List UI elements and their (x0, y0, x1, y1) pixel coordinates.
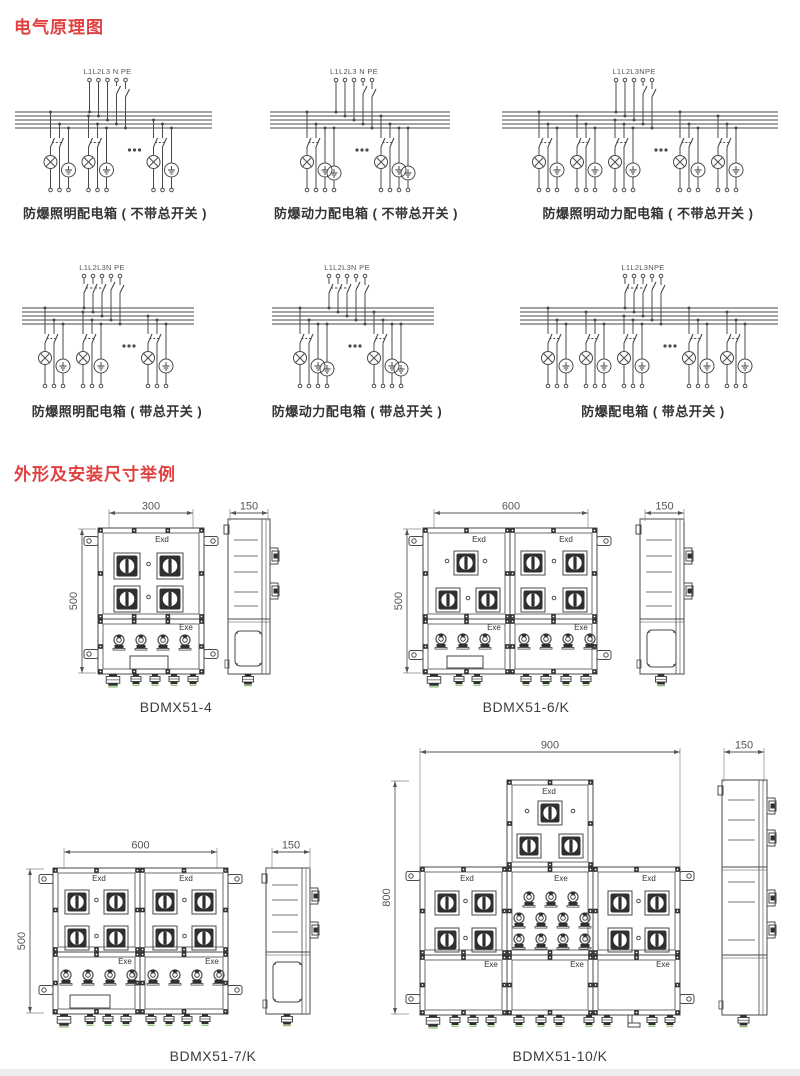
lighting-branch (39, 307, 71, 388)
socket-ground-icon (62, 127, 76, 192)
bottom-cable-gland-icon (188, 674, 198, 685)
lighting-branch (712, 115, 744, 192)
bottom-cable-gland-icon (146, 1014, 156, 1025)
socket-ground-icon (635, 323, 649, 388)
bottom-cable-gland-icon (243, 674, 254, 686)
socket-ground-icon (729, 127, 743, 192)
circuit-caption-power-no-main: 防爆动力配电箱 ( 不带总开关 ) (256, 203, 476, 222)
bottom-cable-gland-icon (150, 674, 160, 685)
cable-gland-icon (518, 634, 530, 649)
bottom-cable-gland-icon (164, 1014, 174, 1025)
lamp-icon (609, 156, 622, 169)
lamp-icon (571, 156, 584, 169)
lamp-icon (618, 352, 631, 365)
circuit-diagram-2: L1L2L3 N PE (270, 67, 450, 192)
lamp-icon (674, 156, 687, 169)
mounting-ear-icon (84, 650, 98, 659)
socket-ground-icon (320, 323, 334, 388)
dimension-height: 800 (381, 781, 409, 1014)
mounting-ear-icon (228, 875, 242, 884)
bottom-cable-gland-icon (521, 674, 531, 685)
bottom-cable-gland-icon (200, 1014, 210, 1025)
dimension-value: 500 (16, 932, 28, 950)
dimension-value: 150 (735, 740, 753, 752)
cable-gland-icon (579, 934, 591, 949)
cabinet-side-view (718, 780, 776, 1027)
cable-gland-icon (213, 970, 225, 985)
cabinet-front-view: ExdExe (84, 528, 218, 687)
exd-label: Exd (542, 787, 556, 796)
exd-label: Exd (642, 874, 656, 883)
lamp-icon (542, 352, 555, 365)
mounting-ear-icon (39, 986, 53, 995)
product-spec-page: L1L2L3 N PEL1L2L3 N PEL1L2L3NPEL1L2L3N P… (0, 0, 800, 1076)
rotary-switch-icon (104, 926, 128, 950)
lighting-branch (142, 315, 174, 388)
lamp-icon (580, 352, 593, 365)
socket-ground-icon (56, 323, 70, 388)
exd-label: Exd (155, 535, 169, 544)
side-connector-icon (310, 922, 319, 938)
dimension-width: 150 (272, 840, 310, 870)
cable-gland-icon (562, 634, 574, 649)
mounting-ear-icon (680, 872, 694, 881)
exe-label: Exe (118, 957, 132, 966)
lighting-branch (609, 119, 641, 192)
dimension-value: 150 (282, 840, 300, 852)
circuit-diagram-1: L1L2L3 N PE (15, 67, 212, 192)
cable-gland-icon (104, 970, 116, 985)
rotary-switch-icon (608, 928, 632, 952)
side-connector-icon (270, 583, 279, 599)
cable-gland-icon (479, 634, 491, 649)
cable-gland-icon (135, 635, 147, 650)
exe-label: Exe (205, 957, 219, 966)
terminal-labels: L1L2L3N PE (79, 263, 125, 272)
dimension-value: 800 (381, 888, 393, 906)
lighting-branch (571, 115, 603, 192)
dimension-value: 600 (502, 501, 520, 513)
rotary-switch-icon (153, 926, 177, 950)
rotary-switch-icon (563, 588, 587, 612)
terminal-labels: L1L2L3 N PE (84, 67, 132, 76)
socket-ground-icon (392, 127, 406, 192)
socket-ground-icon (559, 323, 573, 388)
bottom-cable-gland-icon (282, 1014, 293, 1026)
exd-label: Exd (179, 874, 193, 883)
cable-gland-icon (579, 913, 591, 928)
bus-lines (520, 308, 778, 324)
cabinet-model-bdmx51-6k: BDMX51-6/K (436, 699, 616, 715)
cable-gland-icon (584, 634, 596, 649)
exe-label: Exe (487, 623, 501, 632)
bottom-cable-gland-icon (182, 1014, 192, 1025)
mounting-ear-icon (409, 651, 423, 660)
cable-gland-icon (113, 635, 125, 650)
side-panel (235, 631, 262, 666)
cabinet-front-view: ExdExdExeExe (409, 528, 611, 687)
ellipsis-dots (122, 344, 135, 347)
dimension-width: 150 (645, 501, 684, 522)
power-branch (375, 115, 416, 192)
bottom-cable-gland-icon (514, 1015, 524, 1026)
dimension-width: 150 (724, 740, 764, 783)
exe-label: Exe (656, 960, 670, 969)
cable-gland-icon (513, 913, 525, 928)
bottom-cable-gland-icon (656, 674, 667, 686)
mounting-ear-icon (228, 986, 242, 995)
bottom-cable-gland-icon (85, 1014, 95, 1025)
side-connector-icon (767, 830, 776, 846)
rotary-switch-icon (65, 926, 89, 950)
rotary-switch-icon (608, 891, 632, 915)
bus-lines (272, 308, 434, 324)
ellipsis-dots (355, 148, 368, 151)
side-connector-icon (767, 798, 776, 814)
dimension-width: 150 (230, 501, 268, 522)
cable-gland-icon (457, 634, 469, 649)
cabinet-side-view (224, 519, 279, 686)
lamp-icon (368, 352, 381, 365)
mounting-ear-icon (597, 537, 611, 546)
rotary-switch-icon (472, 891, 496, 915)
bottom-cable-gland-icon (647, 1015, 657, 1026)
rotary-switch-icon (454, 551, 478, 575)
mounting-ear-icon (597, 651, 611, 660)
mounting-ear-icon (204, 650, 218, 659)
mounting-ear-icon (204, 537, 218, 546)
dimension-value: 500 (393, 592, 405, 610)
cabinet-front-view: ExdExdExeExe (39, 868, 242, 1027)
mounting-ear-icon (406, 995, 420, 1004)
side-connector-icon (684, 583, 693, 599)
dimension-value: 900 (541, 740, 559, 752)
bottom-cable-gland-icon (584, 1015, 594, 1026)
dimension-height: 500 (68, 529, 96, 673)
cable-gland-icon (82, 970, 94, 985)
lamp-icon (77, 352, 90, 365)
exe-label: Exe (574, 623, 588, 632)
socket-ground-icon (159, 323, 173, 388)
cable-gland-icon (179, 635, 191, 650)
cable-gland-icon (147, 970, 159, 985)
cable-gland-icon (567, 892, 579, 907)
dimension-value: 600 (131, 840, 149, 852)
cable-gland-icon (191, 970, 203, 985)
lighting-branch (683, 307, 715, 388)
ellipsis-dots (348, 344, 361, 347)
socket-ground-icon (327, 127, 341, 192)
socket-ground-icon (691, 127, 705, 192)
section-title-dimensions: 外形及安装尺寸举例 (14, 460, 176, 485)
rotary-switch-icon (192, 890, 216, 914)
cabinet-model-bdmx51-4: BDMX51-4 (86, 699, 266, 715)
rotary-switch-icon (192, 926, 216, 950)
lighting-branch (77, 311, 109, 388)
side-panel (647, 630, 676, 667)
cable-gland-icon (513, 934, 525, 949)
cable-gland-icon (545, 892, 557, 907)
power-branch (368, 311, 409, 388)
exd-label: Exd (559, 535, 573, 544)
conduit-elbow-icon (628, 1015, 640, 1027)
lighting-branch (533, 111, 565, 192)
cabinet-front-view: ExdExdExdExeExeExeExe (406, 780, 694, 1028)
dimension-value: 150 (240, 501, 258, 513)
lamp-icon (39, 352, 52, 365)
lighting-branch (82, 115, 114, 192)
lamp-icon (147, 156, 160, 169)
compartment-frame (507, 867, 593, 955)
socket-ground-icon (394, 323, 408, 388)
cable-gland-icon (60, 970, 72, 985)
rotary-switch-icon (157, 553, 183, 579)
lighting-branch (542, 307, 574, 388)
circuit-caption-lighting-no-main: 防爆照明配电箱 ( 不带总开关 ) (5, 203, 225, 222)
lighting-branch (721, 311, 753, 388)
dimension-width: 600 (434, 501, 588, 530)
lamp-icon (82, 156, 95, 169)
cable-gland-icon (540, 634, 552, 649)
cable-gland-icon (557, 934, 569, 949)
cable-gland-icon (523, 892, 535, 907)
cabinet-model-bdmx51-7k: BDMX51-7/K (123, 1048, 303, 1064)
rotary-switch-icon (114, 553, 140, 579)
section-title-schematics: 电气原理图 (14, 13, 104, 38)
footer-strip (0, 1069, 800, 1076)
lighting-branch (580, 311, 612, 388)
lamp-icon (142, 352, 155, 365)
circuit-diagram-4: L1L2L3N PE (22, 263, 194, 388)
cable-gland-icon (535, 934, 547, 949)
bottom-cable-gland-icon (131, 674, 141, 685)
circuit-caption-power-with-main: 防爆动力配电箱 ( 带总开关 ) (247, 401, 467, 420)
lamp-icon (301, 156, 314, 169)
power-branch (294, 307, 335, 388)
bottom-cable-gland-icon (554, 1015, 564, 1026)
lighting-branch (147, 119, 179, 192)
lighting-branch (44, 111, 76, 192)
lamp-icon (375, 156, 388, 169)
bottom-cable-gland-icon (486, 1015, 496, 1026)
lamp-icon (533, 156, 546, 169)
cabinet-model-bdmx51-10k: BDMX51-10/K (470, 1048, 650, 1064)
rotary-switch-icon (104, 890, 128, 914)
dimension-height: 500 (16, 869, 44, 1013)
bottom-cable-gland-icon (450, 1015, 460, 1026)
circuit-diagram-6: L1L2L3NPE (520, 263, 778, 388)
dimension-value: 300 (142, 501, 160, 513)
exe-label: Exe (484, 960, 498, 969)
exd-label: Exd (92, 874, 106, 883)
dimension-height: 500 (393, 529, 421, 673)
rotary-switch-icon (521, 588, 545, 612)
rotary-switch-icon (538, 801, 562, 825)
dimension-width: 300 (109, 501, 193, 530)
socket-ground-icon (165, 127, 179, 192)
circuit-diagram-5: L1L2L3N PE (272, 263, 434, 388)
rotary-switch-icon (559, 834, 583, 858)
rotary-switch-icon (435, 891, 459, 915)
terminal-labels: L1L2L3N PE (324, 263, 370, 272)
bottom-cable-gland-icon (541, 674, 551, 685)
socket-ground-icon (626, 127, 640, 192)
cable-gland-icon (435, 634, 447, 649)
lamp-icon (294, 352, 307, 365)
rotary-switch-icon (563, 551, 587, 575)
rotary-switch-icon (436, 588, 460, 612)
rotary-switch-icon (114, 586, 140, 612)
bottom-cable-gland-icon (454, 674, 464, 685)
lamp-icon (721, 352, 734, 365)
power-branch (301, 111, 342, 192)
socket-ground-icon (550, 127, 564, 192)
exe-label: Exe (570, 960, 584, 969)
rotary-switch-icon (645, 928, 669, 952)
rotary-switch-icon (157, 586, 183, 612)
side-connector-icon (310, 888, 319, 904)
bottom-cable-gland-icon (536, 1015, 546, 1026)
socket-ground-icon (318, 127, 332, 192)
side-panel (273, 962, 302, 1002)
bottom-cable-gland-icon (427, 674, 441, 687)
bus-lines (22, 308, 194, 324)
mounting-ear-icon (409, 537, 423, 546)
socket-ground-icon (700, 323, 714, 388)
rotary-switch-icon (517, 834, 541, 858)
technical-drawings: L1L2L3 N PEL1L2L3 N PEL1L2L3NPEL1L2L3N P… (0, 0, 800, 1076)
bottom-cable-gland-icon (581, 674, 591, 685)
side-connector-icon (684, 548, 693, 564)
bottom-cable-gland-icon (426, 1015, 440, 1028)
lighting-branch (618, 315, 650, 388)
exd-label: Exd (472, 535, 486, 544)
bottom-cable-gland-icon (103, 1014, 113, 1025)
side-connector-icon (767, 890, 776, 906)
socket-ground-icon (597, 323, 611, 388)
terminal-labels: L1L2L3NPE (621, 263, 664, 272)
cabinet-side-view (262, 868, 319, 1026)
mounting-ear-icon (39, 875, 53, 884)
rotary-switch-icon (435, 928, 459, 952)
bottom-cable-gland-icon (738, 1015, 749, 1027)
rotary-switch-icon (521, 551, 545, 575)
cable-gland-icon (557, 913, 569, 928)
lamp-icon (44, 156, 57, 169)
cable-gland-icon (157, 635, 169, 650)
bus-lines (502, 112, 778, 128)
bottom-cable-gland-icon (468, 1015, 478, 1026)
circuit-caption-lighting-with-main: 防爆照明配电箱 ( 带总开关 ) (7, 401, 227, 420)
side-connector-icon (270, 548, 279, 564)
dimension-value: 500 (68, 592, 80, 610)
exe-label: Exe (179, 623, 193, 632)
mounting-ear-icon (84, 537, 98, 546)
cable-gland-icon (535, 913, 547, 928)
exe-label: Exe (554, 874, 568, 883)
compartment-frame (593, 867, 680, 955)
ellipsis-dots (654, 148, 667, 151)
side-connector-icon (767, 922, 776, 938)
rotary-switch-icon (476, 588, 500, 612)
mounting-ear-icon (406, 872, 420, 881)
mounting-ear-icon (680, 995, 694, 1004)
socket-ground-icon (588, 127, 602, 192)
bottom-cable-gland-icon (472, 674, 482, 685)
exd-label: Exd (460, 874, 474, 883)
ellipsis-dots (128, 148, 141, 151)
bottom-cable-gland-icon (121, 1014, 131, 1025)
bottom-cable-gland-icon (561, 674, 571, 685)
socket-ground-icon (100, 127, 114, 192)
socket-ground-icon (385, 323, 399, 388)
terminal-labels: L1L2L3 N PE (330, 67, 378, 76)
dimension-width: 600 (64, 840, 217, 870)
cable-gland-icon (169, 970, 181, 985)
socket-ground-icon (94, 323, 108, 388)
circuit-diagram-3: L1L2L3NPE (502, 67, 778, 192)
bottom-cable-gland-icon (665, 1015, 675, 1026)
lighting-branch (674, 111, 706, 192)
bus-lines (270, 112, 450, 128)
bottom-cable-gland-icon (57, 1014, 71, 1027)
cable-gland-icon (126, 970, 138, 985)
bus-lines (15, 112, 212, 128)
socket-ground-icon (401, 127, 415, 192)
cabinet-side-view (636, 519, 693, 686)
socket-ground-icon (738, 323, 752, 388)
socket-ground-icon (311, 323, 325, 388)
rotary-switch-icon (472, 928, 496, 952)
bottom-cable-gland-icon (106, 674, 120, 687)
bottom-cable-gland-icon (602, 1015, 612, 1026)
rotary-switch-icon (645, 891, 669, 915)
bottom-cable-gland-icon (169, 674, 179, 685)
rotary-switch-icon (153, 890, 177, 914)
circuit-caption-lighting-power-no-main: 防爆照明动力配电箱 ( 不带总开关 ) (518, 203, 778, 222)
ellipsis-dots (663, 344, 676, 347)
rotary-switch-icon (65, 890, 89, 914)
dimension-value: 150 (655, 501, 673, 513)
terminal-labels: L1L2L3NPE (612, 67, 655, 76)
circuit-caption-distribution-with-main: 防爆配电箱 ( 带总开关 ) (543, 401, 763, 420)
lamp-icon (683, 352, 696, 365)
lamp-icon (712, 156, 725, 169)
